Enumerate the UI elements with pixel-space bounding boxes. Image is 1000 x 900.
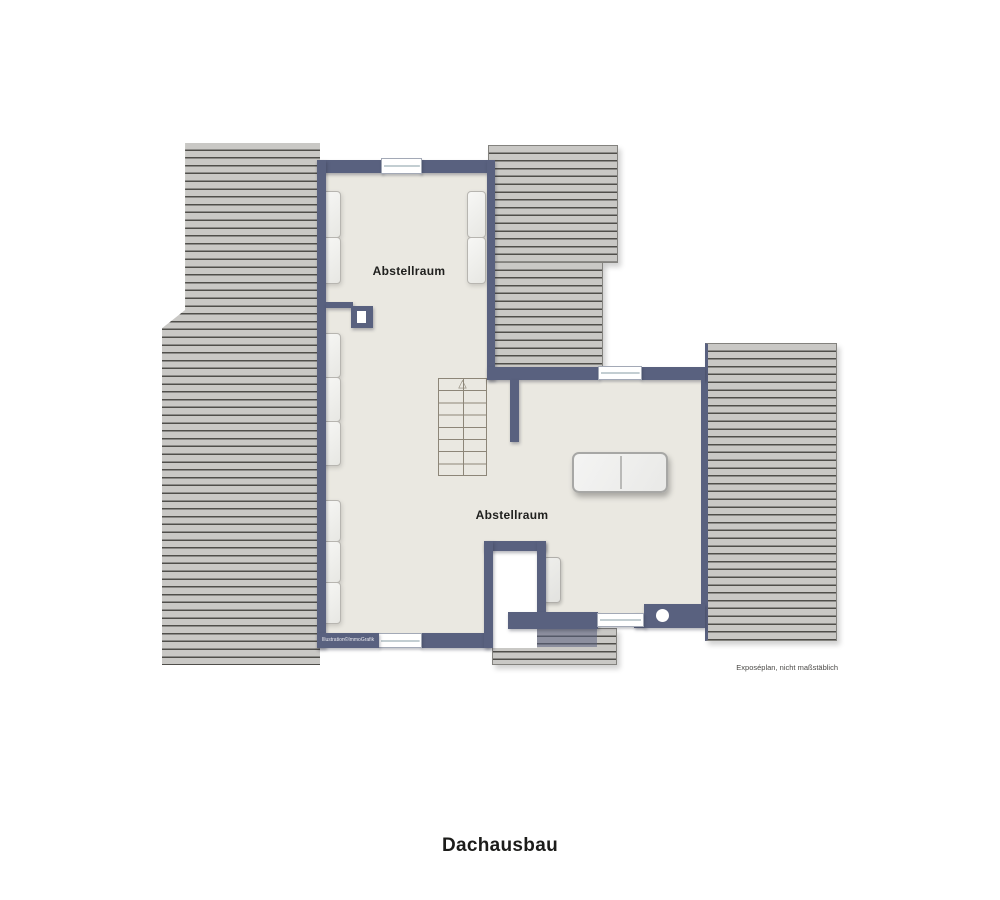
roof-hatch-mid-right (488, 262, 603, 368)
closet-wall-left (484, 541, 493, 648)
closet-void (493, 551, 537, 648)
chimney-flue (357, 311, 366, 323)
wall-bottom-left-with-watermark: Illustration©ImmoGrafik (317, 633, 379, 648)
wall-partial-vertical (510, 380, 519, 442)
staircase: △ (438, 378, 487, 476)
window-bottom-right (597, 613, 644, 627)
room-label-upper: Abstellraum (339, 264, 479, 278)
floorplan-page: { "plan": { "title": "Dachausbau", "room… (0, 0, 1000, 900)
wall-top-right-segment (420, 160, 488, 173)
wall-bottom-left-segment2 (421, 633, 490, 648)
window-top (381, 158, 422, 174)
sofa (572, 452, 668, 493)
window-mid-right (598, 366, 642, 380)
wall-bottom-right-room (508, 612, 598, 629)
watermark-text: Illustration©ImmoGrafik (322, 637, 374, 643)
roof-hatch-top-right (488, 145, 618, 263)
drain-circle-icon (656, 609, 669, 622)
disclaimer-text: Exposéplan, nicht maßstäblich (696, 663, 838, 672)
wall-right-thin (701, 380, 705, 606)
stairs-up-arrow-icon: △ (458, 379, 466, 390)
window-bottom-left (378, 633, 422, 648)
wall-right-upper-room (487, 160, 495, 380)
corner-block-with-drain (644, 604, 705, 628)
room-label-lower: Abstellraum (442, 508, 582, 522)
wall-divider-horizontal-right (641, 367, 705, 380)
wall-left (317, 160, 326, 648)
wall-top-left-segment (317, 160, 383, 173)
closet-wall-right (537, 541, 546, 616)
roof-hatch-right (705, 343, 837, 641)
plan-title: Dachausbau (0, 835, 1000, 857)
chimney (351, 306, 373, 328)
wall-divider-horizontal (487, 367, 599, 380)
roof-hatch-left (162, 143, 320, 665)
chimney-wall-stub (326, 302, 353, 308)
